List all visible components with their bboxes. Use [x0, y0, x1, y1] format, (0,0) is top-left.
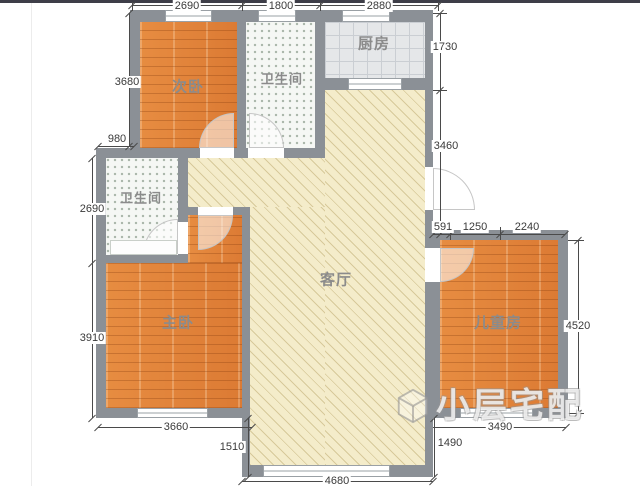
- door-opening-kids: [425, 248, 440, 282]
- dim-left-c: 2690: [78, 203, 106, 215]
- floorplan-canvas: 次卧 卫生间 厨房 客厅 卫生间 主卧 儿童房 2690 1800 2880 3…: [0, 0, 640, 486]
- door-opening-bath-top: [248, 148, 284, 158]
- left-guide-line: [31, 3, 32, 486]
- floor-living-main: [250, 207, 325, 465]
- dim-left-b: 980: [106, 133, 128, 145]
- wall-left-lower: [96, 148, 106, 418]
- dim-top-c: 2880: [365, 0, 393, 12]
- door-opening-bath-left: [178, 222, 188, 254]
- floor-master-bedroom: [106, 263, 242, 408]
- dim-kids-c: 2240: [513, 221, 541, 233]
- dim-right-c: 4520: [564, 320, 592, 332]
- door-opening-second-bedroom: [200, 148, 234, 158]
- room-label-kids-room: 儿童房: [474, 312, 522, 333]
- dim-kids-b: 1250: [461, 221, 489, 233]
- room-label-master-bedroom: 主卧: [162, 312, 194, 333]
- room-label-living: 客厅: [320, 269, 352, 290]
- dim-right-a: 1730: [431, 41, 459, 53]
- dim-line-bottom-b: [248, 418, 249, 477]
- room-label-second-bedroom: 次卧: [172, 76, 204, 97]
- entry-door-opening: [425, 167, 433, 210]
- kitchen-sliding-door: [348, 78, 402, 90]
- dim-top-a: 2690: [173, 0, 201, 12]
- dim-left-a: 3680: [113, 76, 141, 88]
- dim-bottom-d: 1490: [436, 437, 464, 449]
- bath-left-fixture: [110, 240, 177, 255]
- dim-bottom-b: 1510: [218, 441, 246, 453]
- dim-right-b: 3460: [432, 140, 460, 152]
- wall-bath-left-bottom: [96, 255, 188, 263]
- dim-line-left-b: [98, 146, 134, 147]
- watermark: 小层宅配: [394, 384, 584, 428]
- room-label-kitchen: 厨房: [358, 33, 390, 54]
- room-label-bath-left: 卫生间: [120, 188, 162, 207]
- window-master-bedroom: [137, 408, 208, 418]
- watermark-text: 小层宅配: [436, 386, 584, 426]
- door-opening-master: [198, 207, 233, 215]
- floor-hallway: [188, 158, 325, 207]
- dim-left-d: 3910: [78, 332, 106, 344]
- watermark-logo-icon: [394, 387, 432, 425]
- dim-line-right-b: [440, 90, 441, 234]
- room-label-bath-top: 卫生间: [261, 69, 303, 88]
- dim-bottom-a: 3660: [162, 421, 190, 433]
- dim-bottom-c: 4680: [323, 475, 351, 486]
- dim-top-b: 1800: [267, 0, 295, 12]
- wall-bedroom-bath-divider: [237, 10, 246, 158]
- dim-kids-a: 591: [432, 221, 454, 233]
